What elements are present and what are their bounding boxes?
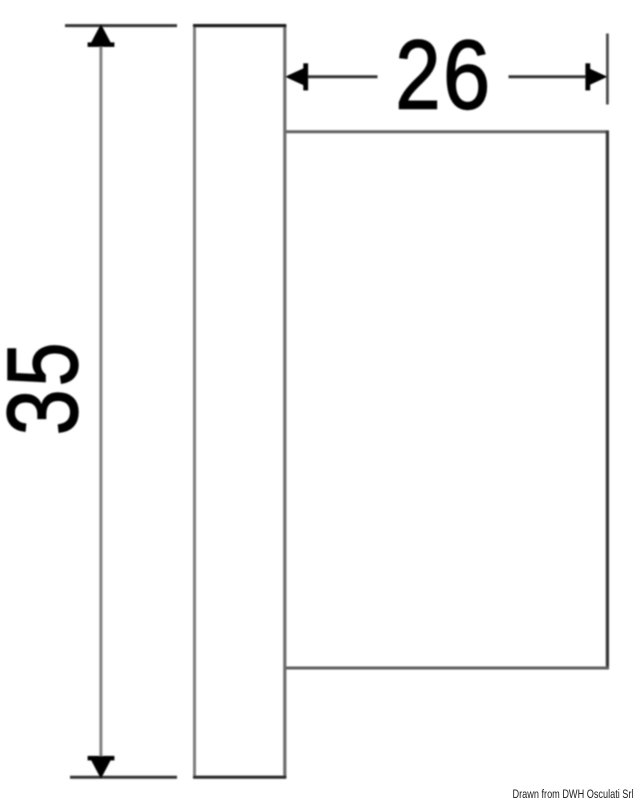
svg-text:3: 3 — [0, 389, 99, 435]
svg-text:Drawn from DWH Osculati Srl: Drawn from DWH Osculati Srl — [513, 787, 634, 800]
svg-text:6: 6 — [443, 20, 490, 130]
svg-text:5: 5 — [0, 342, 99, 386]
svg-text:2: 2 — [395, 20, 440, 130]
